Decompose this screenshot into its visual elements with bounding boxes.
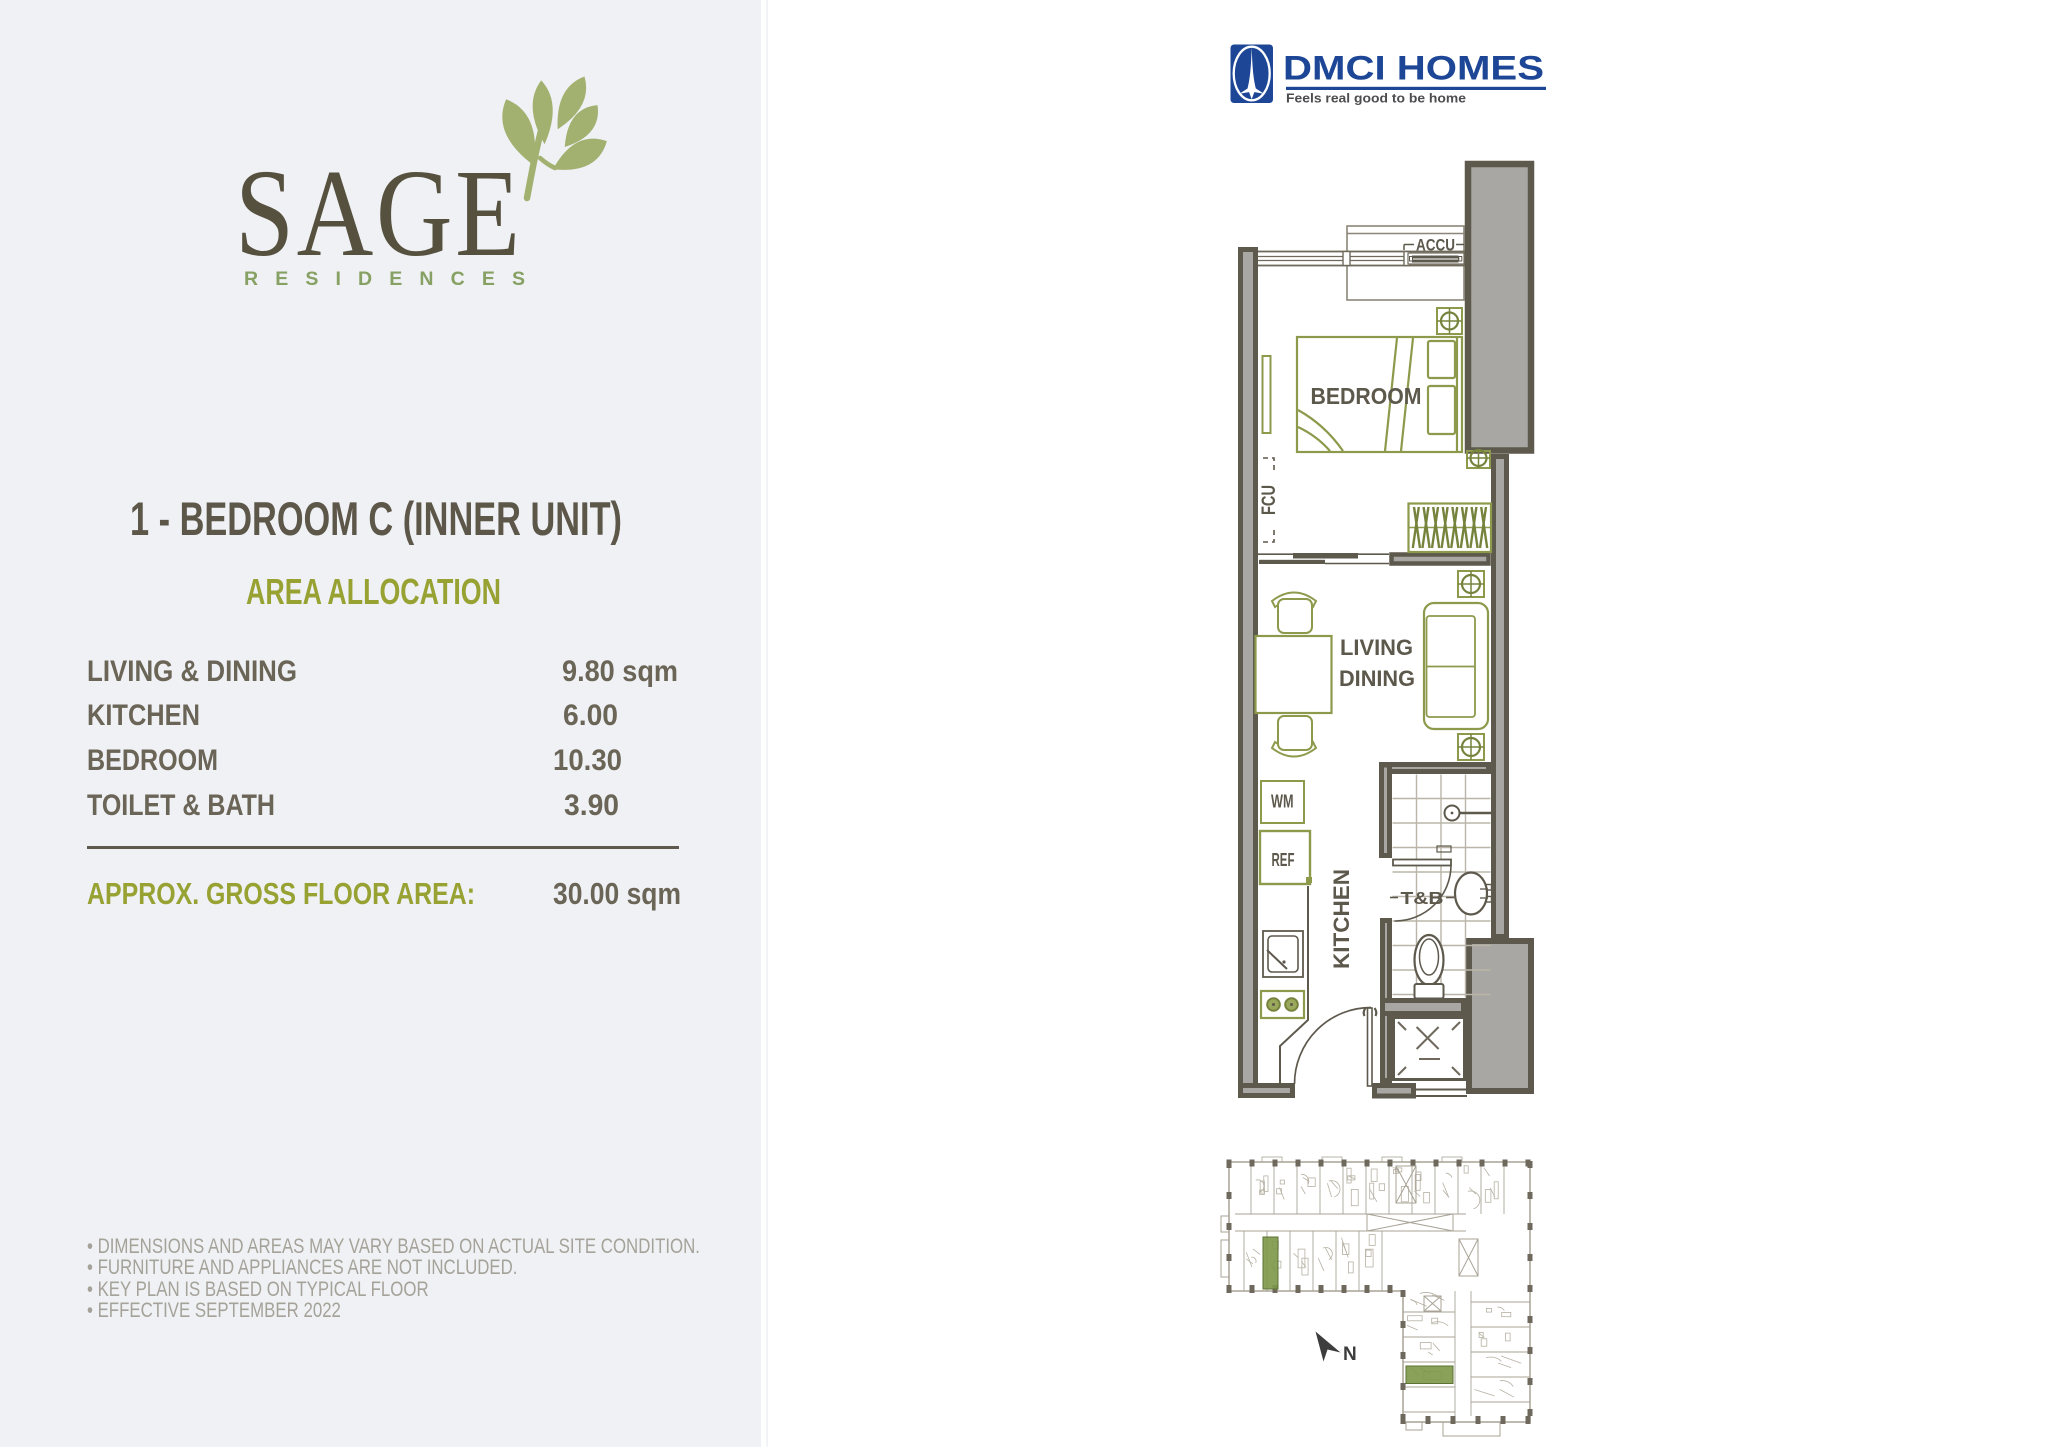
svg-text:DINING: DINING [1339, 666, 1415, 691]
svg-text:BEDROOM: BEDROOM [1311, 383, 1422, 409]
svg-text:DMCI HOMES: DMCI HOMES [1283, 50, 1544, 88]
svg-text:FCU: FCU [1259, 485, 1280, 515]
svg-text:Feels real good to be home: Feels real good to be home [1286, 90, 1466, 105]
svg-text:REF: REF [1272, 850, 1295, 870]
svg-text:WM: WM [1271, 792, 1294, 812]
svg-text:KITCHEN: KITCHEN [1329, 869, 1354, 969]
svg-text:T&B: T&B [1401, 888, 1444, 908]
svg-text:N: N [1343, 1344, 1357, 1365]
svg-text:LIVING: LIVING [1340, 635, 1413, 660]
